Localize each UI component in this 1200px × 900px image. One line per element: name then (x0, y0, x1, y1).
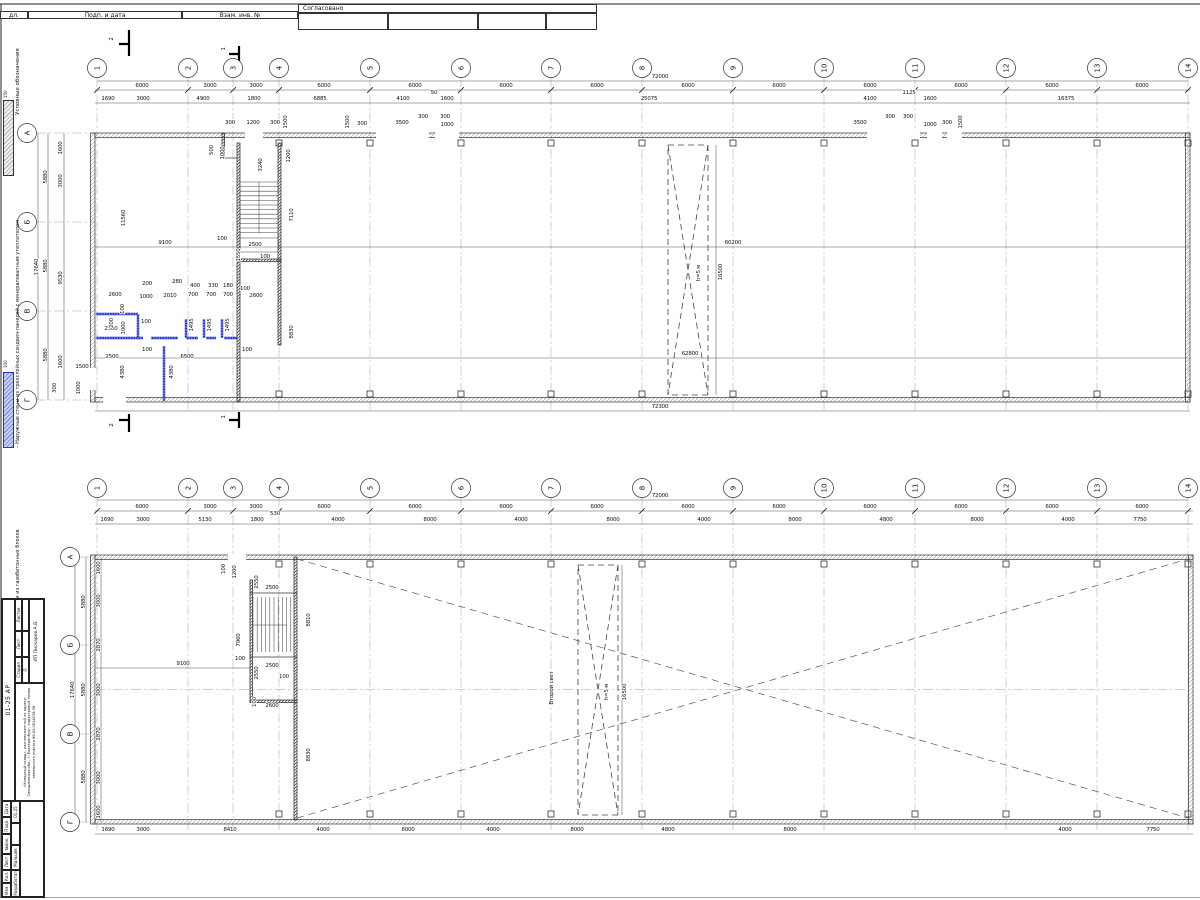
svg-text:10: 10 (820, 484, 828, 493)
svg-text:6000: 6000 (499, 504, 513, 510)
svg-text:1800: 1800 (247, 96, 261, 102)
svg-text:100: 100 (141, 319, 152, 325)
axis-circle: 7 (542, 479, 561, 498)
svg-text:2: 2 (184, 66, 192, 70)
svg-text:8: 8 (638, 486, 646, 490)
svg-text:14: 14 (1184, 483, 1192, 492)
svg-text:1600: 1600 (923, 96, 937, 102)
legend-swatch-sandwich (3, 100, 14, 176)
svg-text:100: 100 (221, 563, 227, 574)
axis-circle: 10 (815, 59, 834, 78)
tb-col: Подп. (2, 817, 11, 834)
axis-circle: 2 (179, 479, 198, 498)
svg-text:3000: 3000 (136, 517, 150, 523)
svg-text:300: 300 (903, 114, 914, 120)
svg-text:60200: 60200 (725, 240, 742, 246)
title-block: Изм. Кол. Лист №док. Подп. Дата Разработ… (1, 598, 45, 898)
tb-role: Разработал (11, 870, 20, 897)
svg-text:3: 3 (229, 66, 237, 70)
axis-circle: В (61, 725, 80, 744)
tb-sheets-value (22, 599, 29, 631)
axis-circle: А (61, 548, 80, 567)
svg-text:700: 700 (188, 292, 199, 298)
tb-col: Изм. (2, 883, 11, 897)
svg-text:3000: 3000 (249, 83, 263, 89)
tb-stage-zone: Стадия Лист Листов П ИП Пискарев А.В. (15, 599, 44, 683)
svg-text:Г: Г (23, 398, 31, 402)
svg-text:5880: 5880 (43, 259, 49, 273)
plan1-dims-row1: 6000300030006000600060006000600060006000… (135, 83, 1149, 89)
header-grid-cell (478, 13, 546, 30)
svg-text:4100: 4100 (863, 96, 877, 102)
svg-text:50: 50 (431, 90, 438, 96)
axis-circle: 8 (633, 479, 652, 498)
svg-text:6000: 6000 (408, 83, 422, 89)
svg-text:3000: 3000 (136, 96, 150, 102)
svg-text:8000: 8000 (783, 827, 797, 833)
svg-text:1550: 1550 (236, 248, 242, 262)
svg-text:А: А (66, 554, 74, 559)
axis-circle: 1 (88, 479, 107, 498)
svg-text:4000: 4000 (486, 827, 500, 833)
svg-text:6000: 6000 (863, 504, 877, 510)
svg-text:1495: 1495 (225, 318, 231, 332)
svg-text:100: 100 (217, 236, 228, 242)
axis-circle: Б (61, 636, 80, 655)
svg-text:1000: 1000 (220, 146, 226, 160)
svg-text:9100: 9100 (176, 661, 190, 667)
svg-text:1: 1 (221, 415, 227, 418)
plan1-dim-lines (36, 81, 1190, 411)
tb-col: Лист (2, 854, 11, 870)
tb-project-name: «Холодный склад», расположенный по адрес… (15, 683, 44, 801)
header-cell-podl: дл. (0, 11, 28, 19)
plan2-open-area-cross (297, 559, 1188, 818)
svg-text:300: 300 (885, 114, 896, 120)
legend-thickness-2: 100 (4, 356, 9, 368)
svg-text:100: 100 (260, 254, 271, 260)
svg-text:2870: 2870 (96, 638, 102, 652)
svg-text:3000: 3000 (203, 83, 217, 89)
axis-circle: 8 (633, 59, 652, 78)
header-label: дл. (9, 12, 19, 19)
svg-text:5880: 5880 (81, 683, 87, 697)
svg-text:6000: 6000 (499, 83, 513, 89)
axis-circle: 4 (270, 59, 289, 78)
svg-text:100: 100 (240, 286, 251, 292)
svg-text:700: 700 (223, 292, 234, 298)
plan1-opening (668, 145, 708, 395)
svg-text:1000: 1000 (121, 321, 127, 335)
header-cell-vzam-inv: Взам. инв. № (182, 11, 298, 19)
svg-text:7960: 7960 (236, 633, 242, 647)
svg-text:8: 8 (638, 66, 646, 70)
svg-text:3000: 3000 (136, 827, 150, 833)
plan2-walls (91, 554, 1194, 824)
svg-text:Г: Г (66, 820, 74, 824)
tb-sheet-value (22, 631, 29, 657)
svg-text:8410: 8410 (223, 827, 237, 833)
svg-text:5: 5 (366, 486, 374, 490)
svg-text:6000: 6000 (681, 83, 695, 89)
svg-text:2500: 2500 (105, 354, 119, 360)
axis-circle: 11 (906, 59, 925, 78)
tb-stage-label: Стадия (15, 657, 22, 683)
tb-doc-code: 01-25 АР (2, 599, 15, 801)
svg-text:3000: 3000 (249, 504, 263, 510)
svg-text:1000: 1000 (139, 294, 153, 300)
svg-text:6000: 6000 (590, 504, 604, 510)
svg-text:1690: 1690 (101, 827, 115, 833)
header-label: Взам. инв. № (220, 12, 261, 19)
svg-text:6000: 6000 (1135, 504, 1149, 510)
svg-text:300: 300 (225, 120, 236, 126)
svg-text:1500: 1500 (958, 115, 964, 129)
svg-text:6000: 6000 (317, 83, 331, 89)
svg-text:2010: 2010 (163, 293, 177, 299)
svg-text:300: 300 (52, 382, 58, 393)
svg-text:7: 7 (547, 486, 555, 490)
svg-text:6885: 6885 (313, 96, 327, 102)
svg-text:1200: 1200 (286, 149, 292, 163)
svg-text:16375: 16375 (1058, 96, 1075, 102)
header-grid-cell (388, 13, 478, 30)
svg-text:9: 9 (729, 66, 737, 70)
axis-circle: 7 (542, 59, 561, 78)
svg-text:5880: 5880 (43, 170, 49, 184)
plan1-section-marks (119, 30, 239, 432)
plan-canvas: 1234567891011121314 АБВГ 72000 600030003… (0, 0, 1200, 900)
svg-text:8000: 8000 (570, 827, 584, 833)
axis-circle: 5 (361, 479, 380, 498)
svg-text:В: В (23, 308, 31, 313)
axis-circle: 6 (452, 59, 471, 78)
svg-text:1000: 1000 (440, 122, 454, 128)
svg-text:1600: 1600 (58, 355, 64, 369)
axis-circle: 6 (452, 479, 471, 498)
plan1: 1234567891011121314 АБВГ 72000 600030003… (18, 30, 1198, 432)
axis-circle: 13 (1088, 59, 1107, 78)
svg-text:5880: 5880 (81, 770, 87, 784)
svg-text:3500: 3500 (853, 120, 867, 126)
plan1-total-dim: 72000 (652, 74, 669, 80)
svg-text:4000: 4000 (1061, 517, 1075, 523)
svg-text:1690: 1690 (101, 96, 115, 102)
plan2-dims-row1: 6000300030006000600060006000600060006000… (135, 504, 1149, 510)
axis-circle: 10 (815, 479, 834, 498)
svg-text:2550: 2550 (254, 666, 260, 680)
titleblock-doc-zone: 01-25 АР «Холодный склад», расположенный… (2, 599, 44, 801)
svg-text:3000: 3000 (96, 683, 102, 697)
tb-sheet-label: Лист (15, 631, 22, 657)
svg-text:72000: 72000 (652, 493, 669, 499)
tb-col: Дата (2, 801, 11, 817)
svg-text:1600: 1600 (440, 96, 454, 102)
axis-circle: 5 (361, 59, 380, 78)
plan1-axis-circles-top: 1234567891011121314 (88, 59, 1198, 78)
plan2-axis-circles-top: 1234567891011121314 (88, 479, 1198, 498)
svg-text:62800: 62800 (682, 351, 699, 357)
header-cell-soglasovano: Согласовано (298, 4, 597, 13)
svg-text:6: 6 (457, 65, 465, 70)
axis-circle: 4 (270, 479, 289, 498)
svg-text:200: 200 (109, 317, 115, 328)
svg-text:300: 300 (440, 114, 451, 120)
svg-text:6000: 6000 (772, 504, 786, 510)
header-grid-cell (546, 13, 597, 30)
svg-text:6000: 6000 (954, 504, 968, 510)
svg-text:3240: 3240 (258, 158, 264, 172)
svg-text:1495: 1495 (207, 318, 213, 332)
svg-text:4000: 4000 (331, 517, 345, 523)
axis-circle: 3 (224, 59, 243, 78)
svg-text:1200: 1200 (246, 120, 260, 126)
title-block-wrap: Изм. Кол. Лист №док. Подп. Дата Разработ… (1, 600, 43, 898)
svg-text:72300: 72300 (652, 404, 669, 410)
svg-text:4800: 4800 (661, 827, 675, 833)
legend-thickness-1: 150 (4, 86, 9, 98)
svg-text:500: 500 (209, 144, 215, 155)
svg-text:7750: 7750 (1133, 517, 1147, 523)
svg-text:330: 330 (208, 283, 219, 289)
svg-text:10: 10 (820, 64, 828, 73)
plan1-bottom-dim: 72300 (652, 404, 669, 410)
svg-text:11: 11 (911, 64, 919, 73)
svg-text:9100: 9100 (158, 240, 172, 246)
legend-item-1: – Наружные стены из трехслойных сэндвич-… (16, 118, 22, 448)
svg-text:6000: 6000 (863, 83, 877, 89)
svg-text:2: 2 (184, 486, 192, 490)
plan1-dims-left: 176405880588058801600300095301600 (34, 141, 64, 369)
svg-text:2600: 2600 (265, 703, 279, 709)
header-label: Подп. и дата (85, 12, 126, 19)
svg-text:280: 280 (172, 279, 183, 285)
tb-client: ИП Пискарев А.В. (29, 599, 44, 683)
svg-text:6000: 6000 (317, 504, 331, 510)
svg-text:6000: 6000 (135, 83, 149, 89)
svg-text:6000: 6000 (135, 504, 149, 510)
svg-text:12: 12 (1002, 64, 1010, 73)
svg-text:3500: 3500 (395, 120, 409, 126)
svg-text:1600: 1600 (96, 561, 102, 575)
svg-text:6500: 6500 (180, 354, 194, 360)
svg-text:8810: 8810 (306, 613, 312, 627)
svg-text:8000: 8000 (970, 517, 984, 523)
plan1-dims-row2: 1690300049001800688541005016002507541001… (101, 90, 1075, 102)
svg-text:8830: 8830 (306, 748, 312, 762)
svg-text:7110: 7110 (289, 208, 295, 222)
drawing-sheet: 1234567891011121314 АБВГ 72000 600030003… (0, 0, 1200, 900)
svg-text:4: 4 (275, 65, 283, 70)
svg-text:8000: 8000 (423, 517, 437, 523)
plan2-axis-grid (94, 497, 1191, 830)
svg-text:8830: 8830 (289, 325, 295, 339)
svg-text:300: 300 (357, 121, 368, 127)
svg-text:100: 100 (279, 674, 290, 680)
svg-text:4000: 4000 (316, 827, 330, 833)
titleblock-rev-zone: Изм. Кол. Лист №док. Подп. Дата Разработ… (2, 801, 44, 897)
svg-text:h=5 м: h=5 м (604, 684, 610, 701)
tb-name: Мальцев (11, 845, 20, 870)
svg-text:3000: 3000 (96, 771, 102, 785)
tb-col: №док. (2, 834, 11, 854)
svg-text:200: 200 (142, 281, 153, 287)
svg-text:1600: 1600 (58, 141, 64, 155)
svg-text:4000: 4000 (514, 517, 528, 523)
svg-text:2600: 2600 (249, 293, 263, 299)
svg-text:Второй свет: Второй свет (548, 670, 555, 704)
tb-sheets-label: Листов (15, 599, 22, 631)
svg-text:2500: 2500 (248, 242, 262, 248)
svg-text:4000: 4000 (1058, 827, 1072, 833)
plan2-dims-row2: 1690300051301800530400080004000800040008… (100, 511, 1147, 523)
svg-text:7750: 7750 (1146, 827, 1160, 833)
tb-stage-value: П (22, 657, 29, 683)
axis-circle: 12 (997, 479, 1016, 498)
tb-date: 01.25 (11, 801, 20, 823)
svg-text:72000: 72000 (652, 74, 669, 80)
svg-text:180: 180 (223, 283, 234, 289)
svg-text:1200: 1200 (232, 565, 238, 579)
svg-text:1: 1 (221, 47, 227, 50)
axis-circle: 9 (724, 479, 743, 498)
axis-circle: 14 (1179, 59, 1198, 78)
svg-text:100: 100 (235, 656, 246, 662)
svg-text:11560: 11560 (121, 209, 127, 226)
axis-circle: 3 (224, 479, 243, 498)
svg-text:1: 1 (93, 486, 101, 490)
svg-text:100: 100 (142, 347, 153, 353)
svg-text:300: 300 (418, 114, 429, 120)
svg-text:6000: 6000 (954, 83, 968, 89)
axis-circle: 2 (179, 59, 198, 78)
axis-circle: 11 (906, 479, 925, 498)
svg-text:Б: Б (23, 219, 31, 224)
svg-text:4000: 4000 (697, 517, 711, 523)
svg-text:4380: 4380 (169, 365, 175, 379)
svg-text:16500: 16500 (718, 263, 724, 280)
svg-text:700: 700 (206, 292, 217, 298)
tb-signature (11, 823, 20, 845)
axis-circle: 9 (724, 59, 743, 78)
svg-text:9530: 9530 (58, 271, 64, 285)
plan1-walls (90, 132, 1191, 404)
svg-text:1: 1 (93, 66, 101, 70)
svg-text:1500: 1500 (75, 364, 89, 370)
plan1-annotations: 3001200300150015003003500300300100050010… (52, 114, 964, 395)
legend-swatch-partition (3, 372, 14, 448)
svg-text:400: 400 (190, 283, 201, 289)
svg-text:3000: 3000 (203, 504, 217, 510)
header-strip: дл. Подп. и дата Взам. инв. № Согласован… (0, 4, 600, 32)
plan2-dims-bottom: 1690300084104000800040008000480080004000… (101, 827, 1160, 833)
svg-text:8000: 8000 (401, 827, 415, 833)
axis-circle: 12 (997, 59, 1016, 78)
svg-text:3000: 3000 (58, 174, 64, 188)
header-grid-cell (298, 13, 388, 30)
svg-text:6000: 6000 (1135, 83, 1149, 89)
svg-text:8000: 8000 (606, 517, 620, 523)
axis-circle: 14 (1179, 479, 1198, 498)
header-cell-podp-data: Подп. и дата (28, 11, 182, 19)
svg-text:16500: 16500 (622, 683, 628, 700)
legend-title: Условные обозначения (15, 30, 21, 115)
sheet-frame (0, 4, 1200, 898)
svg-text:4100: 4100 (396, 96, 410, 102)
svg-text:3000: 3000 (96, 594, 102, 608)
plan2-annotations: 1001200255025007960100250025501002600100… (176, 563, 628, 761)
svg-text:2500: 2500 (265, 663, 279, 669)
svg-text:2600: 2600 (108, 292, 122, 298)
svg-text:17640: 17640 (70, 681, 76, 698)
svg-text:5: 5 (366, 66, 374, 70)
svg-text:300: 300 (270, 120, 281, 126)
svg-text:6000: 6000 (681, 504, 695, 510)
svg-text:4800: 4800 (879, 517, 893, 523)
svg-text:6000: 6000 (408, 504, 422, 510)
svg-text:2550: 2550 (254, 575, 260, 589)
svg-text:14: 14 (1184, 63, 1192, 72)
svg-text:100: 100 (120, 303, 126, 314)
svg-text:2: 2 (109, 37, 115, 40)
svg-text:530: 530 (270, 511, 281, 517)
svg-text:1495: 1495 (189, 318, 195, 332)
svg-text:6000: 6000 (590, 83, 604, 89)
svg-text:4900: 4900 (196, 96, 210, 102)
svg-text:13: 13 (1093, 484, 1101, 493)
svg-text:9: 9 (729, 486, 737, 490)
plan2-stair (253, 597, 291, 652)
tb-empty-rows (20, 801, 44, 897)
svg-text:17640: 17640 (34, 258, 40, 275)
svg-text:В: В (66, 731, 74, 736)
svg-text:6000: 6000 (1045, 83, 1059, 89)
svg-text:2: 2 (109, 423, 115, 426)
axis-circle: Г (61, 813, 80, 832)
svg-text:100: 100 (242, 347, 253, 353)
svg-text:5880: 5880 (81, 595, 87, 609)
svg-text:8000: 8000 (788, 517, 802, 523)
plan2-total-dim: 72000 (652, 493, 669, 499)
svg-text:11: 11 (911, 484, 919, 493)
svg-text:5880: 5880 (43, 348, 49, 362)
svg-text:Б: Б (66, 642, 74, 647)
svg-text:7: 7 (547, 66, 555, 70)
axis-circle: 1 (88, 59, 107, 78)
svg-text:13: 13 (1093, 64, 1101, 73)
svg-text:1690: 1690 (100, 517, 114, 523)
svg-text:h=5 м: h=5 м (696, 265, 702, 282)
svg-text:2870: 2870 (96, 727, 102, 741)
svg-text:4380: 4380 (120, 365, 126, 379)
svg-text:25075: 25075 (641, 96, 658, 102)
svg-text:1800: 1800 (250, 517, 264, 523)
svg-text:6000: 6000 (1045, 504, 1059, 510)
svg-text:12: 12 (1002, 484, 1010, 493)
svg-text:6: 6 (457, 485, 465, 490)
tb-col: Кол. (2, 870, 11, 883)
plan2-opening (578, 565, 618, 815)
svg-text:1000: 1000 (76, 381, 82, 395)
plan2: 1234567891011121314 АБВГ 72000 600030003… (61, 479, 1198, 835)
svg-text:1000: 1000 (923, 122, 937, 128)
svg-text:2500: 2500 (265, 585, 279, 591)
svg-text:5130: 5130 (198, 517, 212, 523)
svg-text:6000: 6000 (772, 83, 786, 89)
svg-text:1125: 1125 (902, 90, 916, 96)
svg-text:3: 3 (229, 486, 237, 490)
svg-text:1500: 1500 (345, 115, 351, 129)
